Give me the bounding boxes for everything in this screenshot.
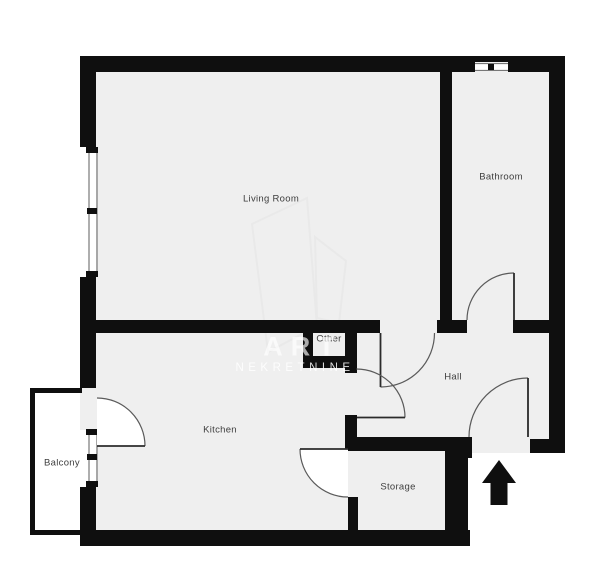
wall-balcony-left [30,388,35,535]
room-label-living-room: Living Room [243,194,299,205]
bathroom-window [470,62,513,72]
hall-floor [345,320,549,451]
balcony-window [80,429,98,487]
wall-storage-left-stub [348,497,358,531]
entry-threshold-floor [472,437,530,453]
wall-right [549,56,565,453]
storage-door-gap [348,451,358,497]
balcony-door-gap [80,388,96,430]
wall-livingroom-bathroom [440,72,452,333]
room-label-hall: Hall [444,372,462,383]
wall-left-upper [80,56,96,147]
wall-right-foot [530,439,565,453]
watermark-text-art: ART [263,332,343,363]
wall-storage-right [445,437,468,531]
living-room-window [80,147,98,277]
entrance-arrow-icon [482,460,516,505]
wall-bottom [80,530,470,546]
wall-balcony-top [30,388,82,393]
wall-left-middle [80,277,96,388]
bathroom-floor [452,72,549,320]
wall-balcony-bottom [30,530,82,535]
floor-plan-drawing [0,0,600,578]
wall-top-left [80,56,470,72]
wall-kitchen-hall [345,415,357,439]
room-label-bathroom: Bathroom [479,172,523,183]
room-label-balcony: Balcony [44,458,80,469]
room-label-storage: Storage [380,482,415,493]
wall-top-above-window [470,56,513,62]
floor-plan: Living Room Bathroom Other Hall Kitchen … [0,0,600,578]
room-label-kitchen: Kitchen [203,425,237,436]
watermark-text-nekretnine: NEKRETNINE [235,362,354,374]
wall-hall-top-right [513,320,549,333]
